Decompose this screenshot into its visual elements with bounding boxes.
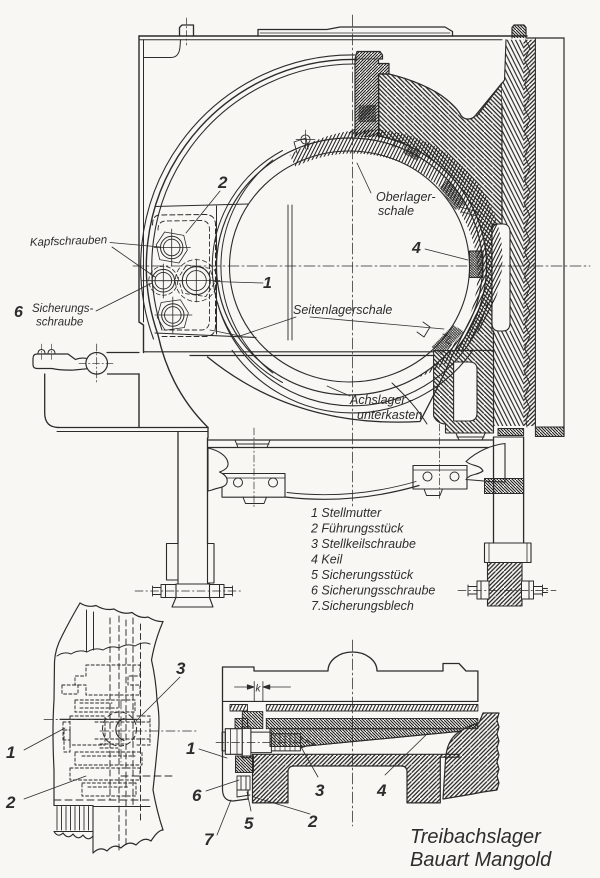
svg-text:Oberlager-: Oberlager- bbox=[376, 190, 436, 204]
svg-text:Seitenlagerschale: Seitenlagerschale bbox=[293, 303, 392, 317]
svg-text:6: 6 bbox=[192, 786, 202, 805]
svg-text:7.Sicherungsblech: 7.Sicherungsblech bbox=[311, 599, 414, 613]
svg-text:2 Führungsstück: 2 Führungsstück bbox=[310, 522, 404, 536]
svg-text:3: 3 bbox=[315, 781, 325, 800]
svg-text:6: 6 bbox=[14, 304, 23, 321]
svg-text:1: 1 bbox=[263, 275, 272, 292]
svg-text:schale: schale bbox=[378, 204, 414, 218]
svg-text:unterkasten: unterkasten bbox=[357, 408, 422, 422]
svg-text:2: 2 bbox=[217, 173, 228, 192]
svg-text:Kapfschrauben: Kapfschrauben bbox=[30, 234, 108, 249]
svg-text:1: 1 bbox=[186, 739, 195, 758]
svg-text:6 Sicherungsschraube: 6 Sicherungsschraube bbox=[311, 584, 435, 598]
svg-text:1: 1 bbox=[6, 743, 15, 762]
svg-text:1 Stellmutter: 1 Stellmutter bbox=[311, 506, 382, 520]
svg-text:schraube: schraube bbox=[36, 317, 83, 329]
svg-text:2: 2 bbox=[307, 812, 318, 831]
svg-text:4: 4 bbox=[376, 781, 387, 800]
svg-text:2: 2 bbox=[5, 793, 16, 812]
svg-text:5 Sicherungsstück: 5 Sicherungsstück bbox=[311, 568, 414, 582]
svg-text:Bauart Mangold: Bauart Mangold bbox=[410, 849, 552, 871]
svg-text:3: 3 bbox=[176, 659, 186, 678]
svg-text:3 Stellkeilschraube: 3 Stellkeilschraube bbox=[311, 537, 416, 551]
svg-text:4: 4 bbox=[411, 240, 421, 257]
svg-text:5: 5 bbox=[244, 814, 254, 833]
svg-text:Achslager -: Achslager - bbox=[349, 393, 413, 407]
svg-text:k: k bbox=[256, 684, 262, 695]
svg-text:Treibachslager: Treibachslager bbox=[410, 826, 542, 848]
svg-text:Sicherungs-: Sicherungs- bbox=[32, 303, 94, 315]
svg-text:7: 7 bbox=[204, 830, 215, 849]
svg-text:4 Keil: 4 Keil bbox=[311, 553, 343, 567]
